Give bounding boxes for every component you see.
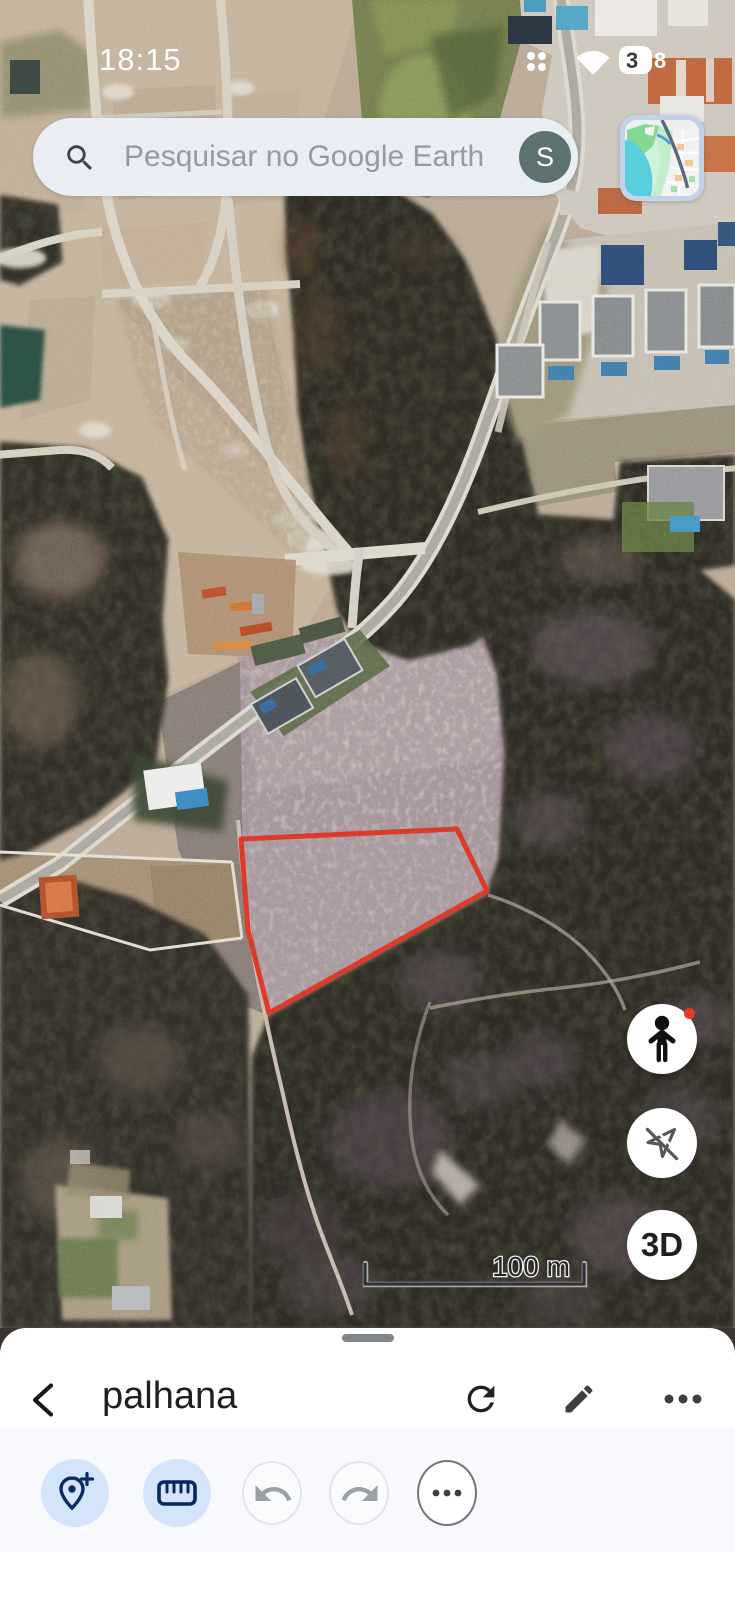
svg-text:3: 3 [626, 48, 638, 73]
svg-text:8: 8 [654, 48, 666, 73]
svg-text:100 m: 100 m [492, 1251, 570, 1282]
